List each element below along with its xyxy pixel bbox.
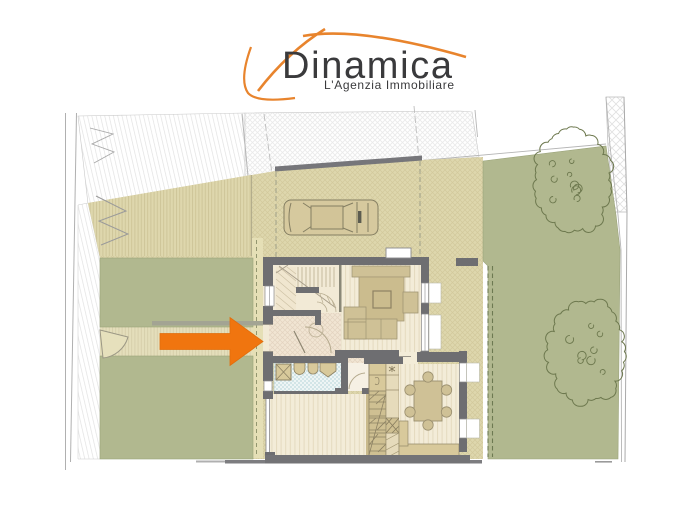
svg-text:L'Agenzia Immobiliare: L'Agenzia Immobiliare — [324, 78, 454, 92]
